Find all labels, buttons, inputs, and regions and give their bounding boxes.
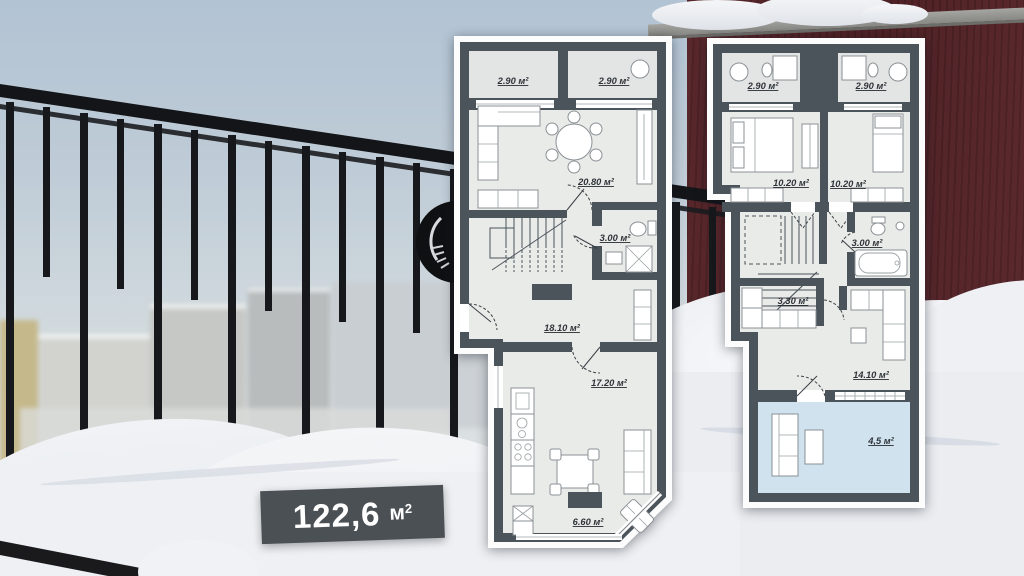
dining-table xyxy=(556,124,592,160)
room-area-bedroom-right: 10.20 м² xyxy=(830,179,867,189)
sink xyxy=(896,222,904,230)
floor-plan-level-2: 2.90 м² 2.90 м² 10.20 м² 10.20 м² xyxy=(703,38,933,518)
desk xyxy=(773,56,797,80)
appliance xyxy=(513,521,533,535)
room-area-bedroom-left: 10.20 м² xyxy=(773,178,810,188)
room-area-loggia: 6.60 м² xyxy=(573,517,605,527)
total-area-value: 122,6 xyxy=(292,495,381,536)
sink xyxy=(606,252,622,264)
room-area-closet: 3.30 м² xyxy=(778,296,810,306)
floor-plan-level-1: 2.90 м² 2.90 м² 20.80 м² xyxy=(454,36,674,548)
balcony-table xyxy=(889,63,907,81)
side-table xyxy=(851,328,866,343)
balconies: 2.90 м² 2.90 м² xyxy=(469,51,657,110)
total-area-unit: м2 xyxy=(389,500,413,525)
balcony-table xyxy=(631,60,649,78)
chair xyxy=(762,63,772,77)
balconies: 2.90 м² 2.90 м² xyxy=(722,53,910,112)
room-area-balcony-left: 2.90 м² xyxy=(497,76,530,86)
sofa xyxy=(478,126,498,180)
room-area-balcony-right: 2.90 м² xyxy=(598,76,631,86)
total-area-badge: 122,6 м2 xyxy=(260,485,445,544)
outdoor-table xyxy=(805,430,823,464)
desk xyxy=(842,56,866,80)
poster-scene: 2.90 м² 2.90 м² 20.80 м² xyxy=(0,0,1024,576)
room-area-kitchen: 17.20 м² xyxy=(591,378,628,388)
room-area-bathroom: 3.00 м² xyxy=(852,238,884,248)
room-area-terrace: 4,5 м² xyxy=(867,436,894,446)
balcony-table xyxy=(730,63,748,81)
room-area-wc: 3.00 м² xyxy=(600,233,632,243)
wardrobe-row xyxy=(851,188,903,202)
room-area-hall: 18.10 м² xyxy=(544,323,581,333)
chair xyxy=(868,63,878,77)
wardrobe xyxy=(634,290,651,340)
shelves xyxy=(762,310,816,328)
room-area-balcony-left: 2.90 м² xyxy=(747,81,780,91)
dresser xyxy=(731,188,783,202)
sofa xyxy=(478,106,540,126)
dining-table xyxy=(557,455,593,488)
room-area-living: 20.80 м² xyxy=(577,177,615,187)
room-area-balcony-right: 2.90 м² xyxy=(855,81,888,91)
outdoor-sofa xyxy=(772,414,798,476)
kitchen-row xyxy=(511,388,534,494)
terrace: 4,5 м² xyxy=(749,376,910,493)
corner-sofa xyxy=(883,290,905,360)
sofa xyxy=(624,430,651,494)
sideboard xyxy=(478,190,538,208)
wardrobe xyxy=(637,110,652,184)
toilet xyxy=(630,222,646,236)
toilet xyxy=(871,223,885,235)
room-area-room: 14.10 м² xyxy=(853,370,890,380)
